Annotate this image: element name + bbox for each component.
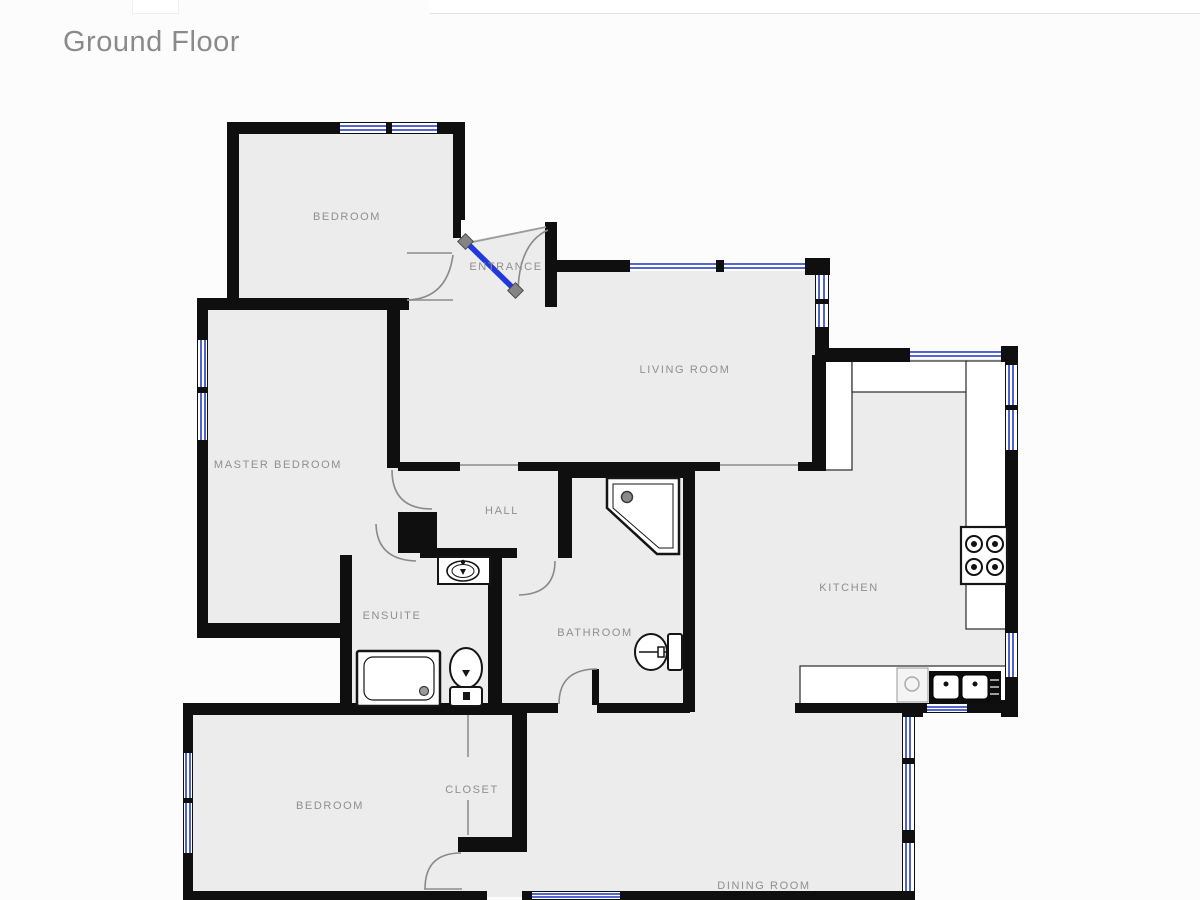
room-label-ensuite: ENSUITE [363, 610, 422, 622]
floor-plan-svg [0, 0, 1200, 900]
counter-top [852, 361, 968, 392]
toilet-icon [450, 648, 482, 706]
dining-room-floor [524, 708, 912, 900]
living-room-floor [398, 268, 822, 467]
floor-plan-page: Ground Floor [0, 0, 1200, 900]
sink-vanity-icon [438, 557, 490, 584]
bathtub-icon [357, 651, 440, 706]
appliance-icon [897, 668, 928, 702]
room-label-kitchen: KITCHEN [819, 582, 878, 594]
kitchen-sink-icon [929, 671, 1001, 703]
room-label-bedroom-bottom: BEDROOM [296, 800, 364, 812]
room-floors [188, 128, 1012, 900]
room-label-master-bedroom: MASTER BEDROOM [214, 459, 342, 471]
bathroom-door-leaf [592, 669, 599, 705]
room-label-living-room: LIVING ROOM [640, 364, 731, 376]
counter-right [966, 361, 1007, 629]
toilet-icon [635, 634, 682, 670]
room-label-closet: CLOSET [443, 784, 501, 796]
room-label-hall: HALL [485, 505, 519, 517]
room-label-entrance: ENTRANCE [469, 261, 542, 273]
room-label-dining-room: DINING ROOM [717, 880, 810, 892]
room-label-bathroom: BATHROOM [557, 627, 633, 639]
stove-icon [961, 527, 1007, 584]
room-label-bedroom-top: BEDROOM [313, 211, 381, 223]
counter-left [824, 361, 852, 470]
